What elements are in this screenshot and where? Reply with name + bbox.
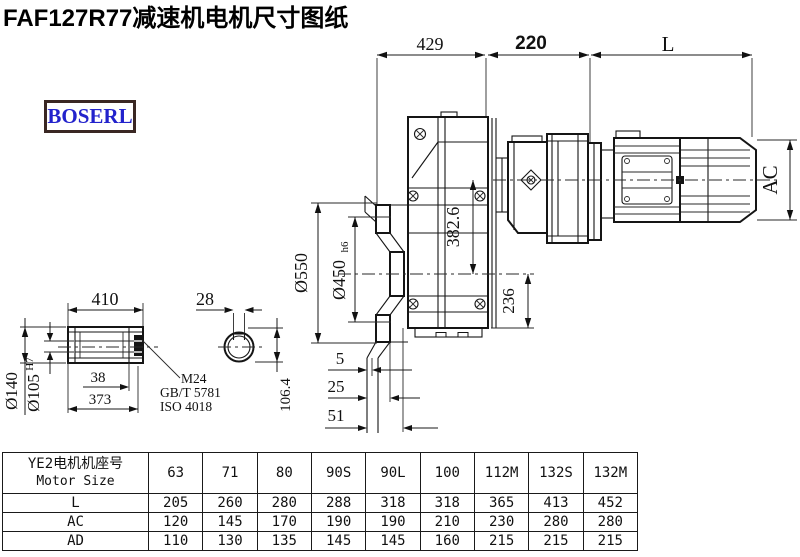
dim-L: L <box>662 32 675 56</box>
table-header-cell: 71 <box>203 453 257 494</box>
dim-382: 382.6 <box>443 207 463 248</box>
note-m24: M24 <box>181 371 207 386</box>
dim-38: 38 <box>91 370 106 386</box>
table-cell: 210 <box>420 513 474 532</box>
flange-face-offset-dimensions: 5 25 51 <box>325 349 438 431</box>
table-cell: 260 <box>203 494 257 513</box>
table-header-cell: 112M <box>474 453 528 494</box>
table-cell: 413 <box>529 494 583 513</box>
dim-410: 410 <box>92 289 119 309</box>
table-header-cell: 100 <box>420 453 474 494</box>
table-cell: 120 <box>149 513 203 532</box>
dim-d105: Ø105 <box>24 374 43 412</box>
table-cell: 452 <box>583 494 637 513</box>
table-cell: 280 <box>257 494 311 513</box>
hollow-shaft-detail: 410 Ø140 <box>2 289 221 415</box>
drawing-page: FAF127R77减速机电机尺寸图纸 BOSERL 429 220 L <box>0 0 800 557</box>
motor <box>614 131 756 222</box>
dim-51: 51 <box>328 406 345 425</box>
table-cell: 318 <box>366 494 420 513</box>
dim-AC: AC <box>758 165 782 194</box>
dim-106: 106.4 <box>278 378 294 412</box>
motor-size-table: YE2电机机座号 Motor Size 63 71 80 90S 90L 100… <box>2 452 638 551</box>
table-cell: 215 <box>529 532 583 551</box>
technical-drawing: 429 220 L <box>0 0 800 452</box>
table-header-motor-size: YE2电机机座号 Motor Size <box>3 453 149 494</box>
dim-429: 429 <box>417 34 444 54</box>
table-header-cell: 90L <box>366 453 420 494</box>
note-gbt: GB/T 5781 <box>160 385 221 400</box>
table-cell: 205 <box>149 494 203 513</box>
table-cell: 110 <box>149 532 203 551</box>
table-header-cell: 132S <box>529 453 583 494</box>
table-header-row: YE2电机机座号 Motor Size 63 71 80 90S 90L 100… <box>3 453 638 494</box>
table-cell: 145 <box>311 532 365 551</box>
dim-d450: Ø450 <box>329 260 349 300</box>
table-row-AD: AD 110 130 135 145 145 160 215 215 215 <box>3 532 638 551</box>
dim-d105-tolerance: H7 <box>24 357 36 371</box>
dim-220: 220 <box>515 33 547 54</box>
r77-gear-stage <box>496 134 614 243</box>
table-cell: 130 <box>203 532 257 551</box>
ac-dimension: AC <box>757 140 797 220</box>
table-cell: 280 <box>529 513 583 532</box>
table-header-cell: 80 <box>257 453 311 494</box>
table-cell: 145 <box>203 513 257 532</box>
table-header-cell: 63 <box>149 453 203 494</box>
note-iso: ISO 4018 <box>160 399 212 414</box>
table-cell: 230 <box>474 513 528 532</box>
dim-373: 373 <box>89 392 112 408</box>
table-cell: 135 <box>257 532 311 551</box>
dim-d140: Ø140 <box>2 372 21 410</box>
row-label: L <box>3 494 149 513</box>
table-cell: 288 <box>311 494 365 513</box>
table-row-L: L 205 260 280 288 318 318 365 413 452 <box>3 494 638 513</box>
table-header-cell: 132M <box>583 453 637 494</box>
dim-28: 28 <box>196 289 214 309</box>
output-flange <box>365 196 408 433</box>
dim-236: 236 <box>499 288 518 314</box>
header-en: Motor Size <box>3 474 148 490</box>
table-cell: 190 <box>366 513 420 532</box>
table-cell: 215 <box>583 532 637 551</box>
dim-5: 5 <box>336 349 345 368</box>
table-cell: 318 <box>420 494 474 513</box>
table-cell: 160 <box>420 532 474 551</box>
dim-d550: Ø550 <box>291 253 311 293</box>
table-cell: 145 <box>366 532 420 551</box>
header-cn: YE2电机机座号 <box>3 456 148 474</box>
table-cell: 365 <box>474 494 528 513</box>
row-label: AD <box>3 532 149 551</box>
table-cell: 190 <box>311 513 365 532</box>
row-label: AC <box>3 513 149 532</box>
table-cell: 170 <box>257 513 311 532</box>
table-cell: 215 <box>474 532 528 551</box>
table-row-AC: AC 120 145 170 190 190 210 230 280 280 <box>3 513 638 532</box>
table-cell: 280 <box>583 513 637 532</box>
dim-25: 25 <box>328 377 345 396</box>
dim-d450-tolerance: h6 <box>339 241 351 253</box>
table-header-cell: 90S <box>311 453 365 494</box>
